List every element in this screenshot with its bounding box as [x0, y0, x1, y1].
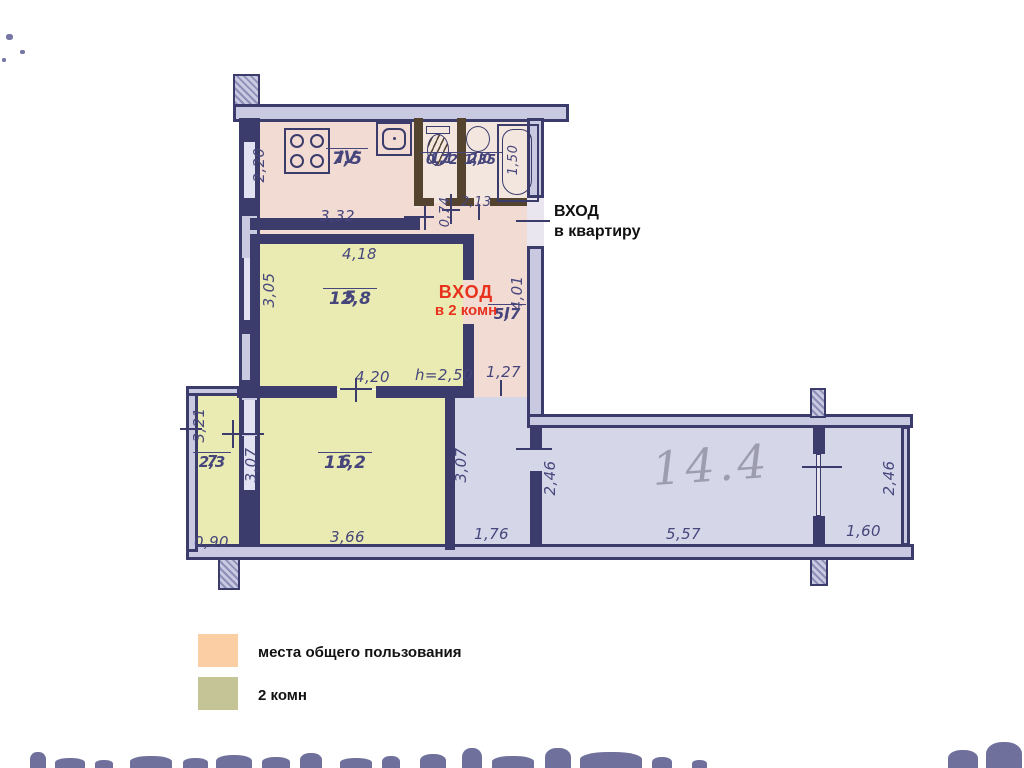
room-area: 12,8 — [323, 288, 377, 310]
scan-artifact — [30, 752, 46, 768]
wall-room5-left — [250, 234, 260, 392]
wall-pilaster — [241, 490, 258, 546]
dim-right-height: 2,46 — [881, 455, 897, 501]
scan-artifact — [692, 760, 707, 768]
dim-right-width: 1,60 — [846, 523, 881, 540]
legend-swatch-rooms — [198, 677, 238, 710]
dim-kitchen-width: 3,32 — [320, 208, 355, 225]
scan-artifact — [262, 757, 290, 768]
dim-room5-top: 4,18 — [342, 246, 377, 263]
wall-partition-b — [813, 516, 825, 546]
scan-artifact — [300, 753, 322, 768]
wall-stub-bottom-right — [810, 558, 828, 586]
wall-stub-top-partition — [810, 388, 826, 418]
dim-tub-length: 1,50 — [507, 137, 523, 183]
wall-bigroom-top — [527, 414, 913, 428]
door-partition — [816, 454, 821, 516]
room-area: 1,35 — [458, 152, 502, 169]
dim-tick — [424, 206, 426, 230]
entrance-rooms-line2: в 2 комн — [420, 303, 512, 320]
dim-room6-width: 3,66 — [330, 529, 365, 546]
scan-artifact — [216, 755, 252, 768]
handwritten-area-note: 14.4 — [651, 438, 772, 492]
wall-toilet-bottom-a — [414, 198, 434, 206]
door-jamb — [463, 324, 474, 326]
room-area: 11,2 — [318, 452, 372, 474]
scan-artifact — [580, 752, 642, 768]
dim-room5-height: 3,05 — [261, 267, 277, 313]
scan-artifact — [545, 748, 571, 768]
entrance-apartment-line1: ВХОД — [554, 202, 641, 222]
dim-tick — [222, 433, 264, 435]
dim-tick — [516, 448, 552, 450]
dim-room5-bottom: 4,20 — [355, 369, 390, 386]
balcony-door-room7 — [242, 400, 257, 434]
wall-room7-top — [186, 386, 242, 396]
door-jamb — [335, 386, 337, 398]
wall-room5-right-a — [463, 234, 474, 280]
scan-artifact — [183, 758, 208, 768]
wall-pilaster — [241, 198, 258, 216]
dim-ceiling-height: h=2,50 — [415, 367, 473, 384]
legend-label-rooms: 2 комн — [258, 688, 307, 703]
scan-artifact — [95, 760, 113, 768]
wall-room5-top — [250, 234, 474, 244]
scan-artifact — [2, 58, 6, 62]
dim-tick — [340, 388, 372, 390]
dim-bigroom-height: 2,46 — [542, 455, 558, 501]
dim-tick — [404, 216, 434, 218]
kitchen-sink-icon — [376, 122, 412, 156]
wall-partition-a — [813, 428, 825, 454]
dim-toilet-door: 0,74 — [439, 189, 455, 235]
dim-corridor-width: 1,76 — [474, 526, 509, 543]
scan-artifact — [382, 756, 400, 768]
door-jamb — [463, 278, 474, 280]
wall-room5-6-b — [378, 386, 474, 398]
dim-hall-width: 1,27 — [486, 364, 521, 381]
wall-right-upper-b — [527, 246, 544, 428]
dim-tick — [516, 220, 550, 222]
room-area: 2,3 — [193, 452, 232, 472]
scan-artifact — [340, 758, 372, 768]
wall-room5-6-a — [237, 386, 335, 398]
dim-tick — [802, 466, 842, 468]
entrance-rooms-label: ВХОД в 2 комн — [420, 283, 512, 319]
scan-artifact — [948, 750, 978, 768]
legend-swatch-common — [198, 634, 238, 667]
scan-artifact — [55, 758, 85, 768]
scan-artifact — [492, 756, 534, 768]
wall-stub-bottom-left — [218, 558, 240, 590]
scan-artifact — [462, 748, 482, 768]
scan-artifact — [420, 754, 446, 768]
scan-artifact — [6, 34, 13, 40]
wall-bottom — [186, 544, 914, 560]
dim-room7-height: 3,21 — [191, 402, 207, 448]
entrance-rooms-line1: ВХОД — [420, 283, 512, 303]
wall-top — [233, 104, 569, 122]
door-jamb — [376, 386, 378, 398]
floorplan-scan: IV 7,5 1,1 0,72 2,0 1,35 5 12,8 I 5,7 6 … — [0, 0, 1024, 768]
dim-bath-width: 2,13 — [461, 196, 492, 210]
dim-corridor-height: 3,07 — [453, 442, 469, 488]
dim-tick — [500, 380, 502, 396]
entrance-apartment-label: ВХОД в квартиру — [554, 202, 641, 242]
entrance-apartment-line2: в квартиру — [554, 222, 641, 242]
wall-corridor-right-a — [530, 428, 542, 449]
stove-icon — [284, 128, 330, 174]
dim-kitchen-height: 2,20 — [251, 142, 267, 188]
dim-room7-width: 0,90 — [194, 534, 229, 551]
dim-room6-height: 3,07 — [243, 442, 259, 488]
dim-bigroom-width: 5,57 — [666, 526, 701, 543]
door-apartment-entrance — [527, 198, 544, 246]
scan-artifact — [986, 742, 1022, 768]
scan-artifact — [130, 756, 172, 768]
scan-artifact — [20, 50, 25, 54]
legend-label-common: места общего пользования — [258, 645, 462, 660]
wall-window-right — [901, 426, 910, 546]
room-area: 7,5 — [326, 148, 368, 170]
scan-artifact — [652, 757, 672, 768]
dim-tick — [232, 420, 234, 448]
wall-pilaster — [241, 120, 258, 142]
